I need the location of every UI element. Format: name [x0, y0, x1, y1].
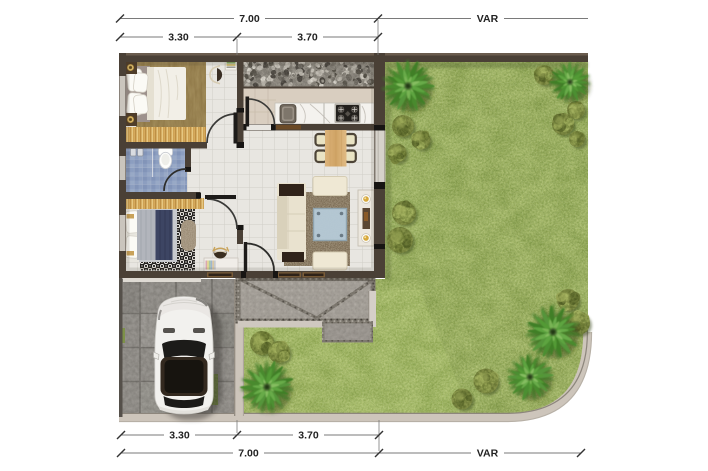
svg-text:VAR: VAR — [477, 448, 499, 460]
svg-text:3.30: 3.30 — [168, 32, 189, 44]
svg-text:3.70: 3.70 — [297, 32, 318, 44]
svg-text:3.30: 3.30 — [169, 430, 190, 442]
svg-text:3.70: 3.70 — [298, 430, 319, 442]
svg-text:VAR: VAR — [477, 13, 499, 25]
svg-text:7.00: 7.00 — [238, 448, 259, 460]
svg-text:7.00: 7.00 — [239, 13, 260, 25]
